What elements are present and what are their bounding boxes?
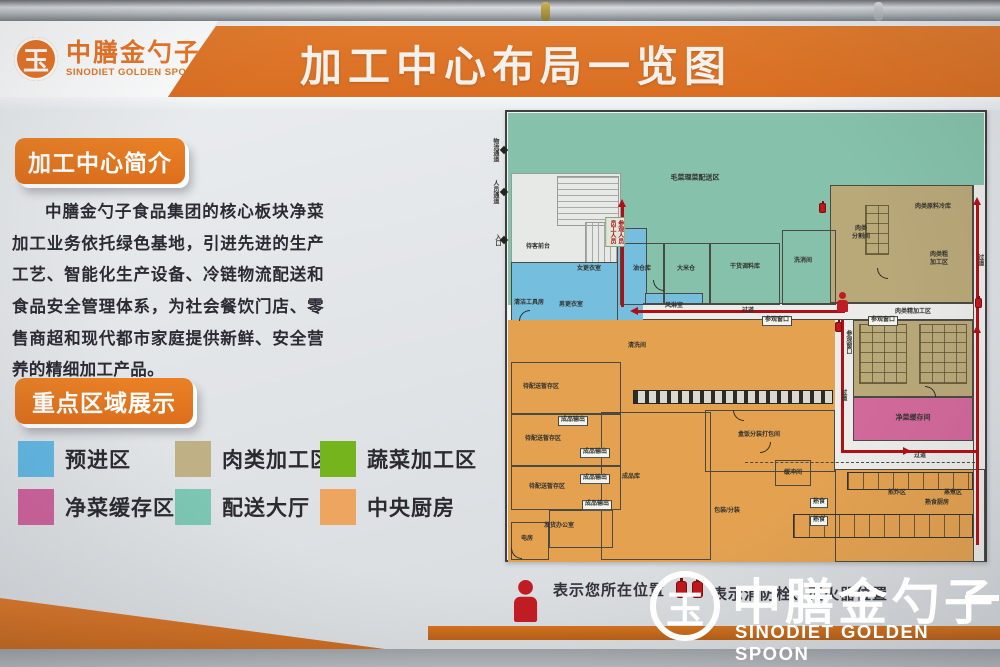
path-arrow-left [630, 307, 638, 315]
you-are-here-marker [837, 292, 848, 312]
plan-label-aisle: 过道 [975, 254, 983, 266]
plan-label-product-output: 成品输出 [582, 500, 612, 510]
plan-label-entrance: 入口 [492, 234, 500, 246]
legend-label: 配送大厅 [222, 492, 310, 522]
plan-label-power-room: 电房 [521, 536, 533, 544]
path-arrow-right [903, 447, 911, 455]
plan-label-meat-rough: 肉类粗 加工区 [930, 252, 948, 268]
legend-label: 净菜缓存区 [65, 492, 175, 522]
plan-label-frying-zone: 煎炸区 [888, 490, 906, 498]
bottom-orange-wedge [0, 598, 385, 649]
rail-clip [874, 2, 883, 21]
plan-label-staff-corridor: 人员通道 [490, 180, 498, 204]
floor-plan: 毛菜理菜配送区 待客前台 物流通道 人员通道 入口 参观人员 员工人员 女更衣室… [505, 110, 989, 565]
person-icon [839, 292, 846, 299]
poster: 加工中心布局一览图 玉 中膳金勺子 SINODIET GOLDEN SPOON … [0, 21, 1000, 649]
header-sheen [0, 97, 1000, 110]
plan-label-viewing-window: 参观窗口 [762, 316, 792, 326]
plan-label-meat-cutting: 肉类 分割间 [852, 226, 870, 242]
plan-label-women-changing: 女更衣室 [577, 266, 601, 274]
plan-label-meat-fine: 肉类精加工区 [895, 309, 931, 317]
plan-label-dispatch-buffer: 待配送暂存区 [529, 484, 565, 492]
brand-name-cn: 中膳金勺子 [66, 40, 202, 68]
plan-label-cleaning-tools: 清洁工具房 [514, 300, 544, 308]
plan-label-cooked-pass: 熟食 [810, 516, 828, 526]
plan-label-logistics-corridor: 物流通道 [490, 138, 498, 162]
plan-label-viewing-window: 参观窗口 [868, 316, 898, 326]
plan-label-packing: 包装/分装 [714, 508, 740, 516]
room-box [782, 230, 836, 305]
plan-label-viewing-window: 参观窗口 [843, 330, 851, 354]
plan-label-boxmeal-packing: 盒饭分装打包间 [738, 432, 780, 440]
legend-swatch [320, 489, 356, 525]
plan-label-aisle: 过道 [742, 308, 754, 316]
conveyor-line [633, 390, 833, 404]
region-meat-processing [830, 185, 973, 303]
dashed-route [745, 462, 975, 463]
legend-label: 预进区 [65, 444, 131, 474]
path-arrow-up [973, 325, 981, 333]
legend-swatch [18, 441, 54, 477]
plan-label-shipping-office: 发货办公室 [544, 523, 574, 531]
plan-label-washing-room: 清洗间 [628, 343, 646, 351]
plan-label-aisle: 过道 [838, 389, 846, 401]
plan-label-hall: 毛菜理菜配送区 [671, 173, 720, 182]
legend-item: 预进区 [18, 441, 131, 477]
brand-dash [965, 595, 999, 601]
rail-clip [541, 2, 550, 21]
room-box [620, 243, 664, 305]
plan-label-buffer-room: 缓冲间 [784, 470, 802, 478]
plan-label-wash-sanitize: 洗消间 [794, 258, 812, 266]
aisle-strip [835, 441, 985, 469]
plan-label-product-output: 成品输出 [558, 416, 588, 426]
room-box [601, 412, 711, 560]
brand-logo-icon: 玉 [14, 37, 58, 81]
brand-logo-icon: 玉 [650, 571, 720, 641]
legend-swatch [175, 441, 211, 477]
plan-label-visitor-entry: 参观人员 员工人员 [605, 217, 625, 247]
cooking-line [847, 472, 973, 490]
fire-extinguisher-icon [819, 203, 826, 213]
plan-label-steaming-zone: 蒸煮区 [944, 490, 962, 498]
plan-label-rice-store: 大米仓 [677, 266, 695, 274]
legend-item: 中央厨房 [320, 489, 455, 525]
legend-item: 配送大厅 [175, 489, 310, 525]
plan-label-dispatch-buffer: 待配送暂存区 [525, 436, 561, 444]
plan-label-oil-store: 油仓库 [633, 266, 651, 274]
plan-label-product-output: 成品输出 [580, 474, 610, 484]
legend-heading: 重点区域展示 [15, 378, 193, 424]
brand-logo-bottom: 玉 中膳金勺子 SINODIET GOLDEN SPOON [640, 561, 1000, 651]
plan-label-dispatch-buffer: 待配送暂存区 [523, 384, 559, 392]
plan-label-veg-buffer: 净菜缓存间 [896, 413, 931, 422]
brand-name-en: SINODIET GOLDEN SPOON [66, 67, 202, 78]
path-arrow-up [618, 199, 626, 207]
legend-swatch [320, 441, 356, 477]
brand-name-en: SINODIET GOLDEN SPOON [735, 621, 1000, 665]
legend-item: 蔬菜加工区 [320, 441, 477, 477]
intro-paragraph: 中膳金勺子食品集团的核心板块净菜加工业务依托绿色基地，引进先进的生产工艺、智能化… [12, 197, 324, 387]
plan-label-cooked-pass: 熟食 [810, 498, 828, 508]
legend-swatch [175, 489, 211, 525]
intro-heading: 加工中心简介 [15, 138, 185, 184]
legend-label: 中央厨房 [367, 492, 455, 522]
plan-label-men-changing: 男更衣室 [559, 302, 583, 310]
fire-extinguisher-icon [835, 322, 842, 332]
plan-label-product-output: 成品输出 [580, 448, 610, 458]
path-arrow-up [973, 197, 981, 205]
wall-mounting-rail [0, 0, 1000, 21]
plan-label-reception: 待客前台 [526, 244, 550, 252]
room-box [710, 243, 780, 305]
person-icon [514, 580, 537, 622]
plan-label-dry-seasoning: 干货调料库 [730, 264, 760, 272]
page-title: 加工中心布局一览图 [300, 33, 732, 94]
work-tables [919, 324, 967, 384]
legend-label: 蔬菜加工区 [367, 444, 477, 474]
fire-extinguisher-icon [975, 298, 982, 308]
work-tables [859, 324, 907, 384]
legend-item: 肉类加工区 [175, 441, 332, 477]
photo-of-layout-poster: 加工中心布局一览图 玉 中膳金勺子 SINODIET GOLDEN SPOON … [0, 0, 1000, 667]
plan-label-cooked-kitchen: 熟食厨房 [925, 500, 949, 508]
plan-label-product-store: 成品库 [622, 474, 640, 482]
legend-label: 肉类加工区 [222, 444, 332, 474]
plan-label-meat-cold-store: 肉类原料冷库 [915, 204, 951, 212]
plan-label-air-shower: 风淋室 [665, 303, 683, 311]
room-box [664, 243, 710, 305]
plan-label-aisle: 过道 [914, 453, 926, 461]
legend-swatch [18, 489, 54, 525]
legend-item: 净菜缓存区 [18, 489, 175, 525]
